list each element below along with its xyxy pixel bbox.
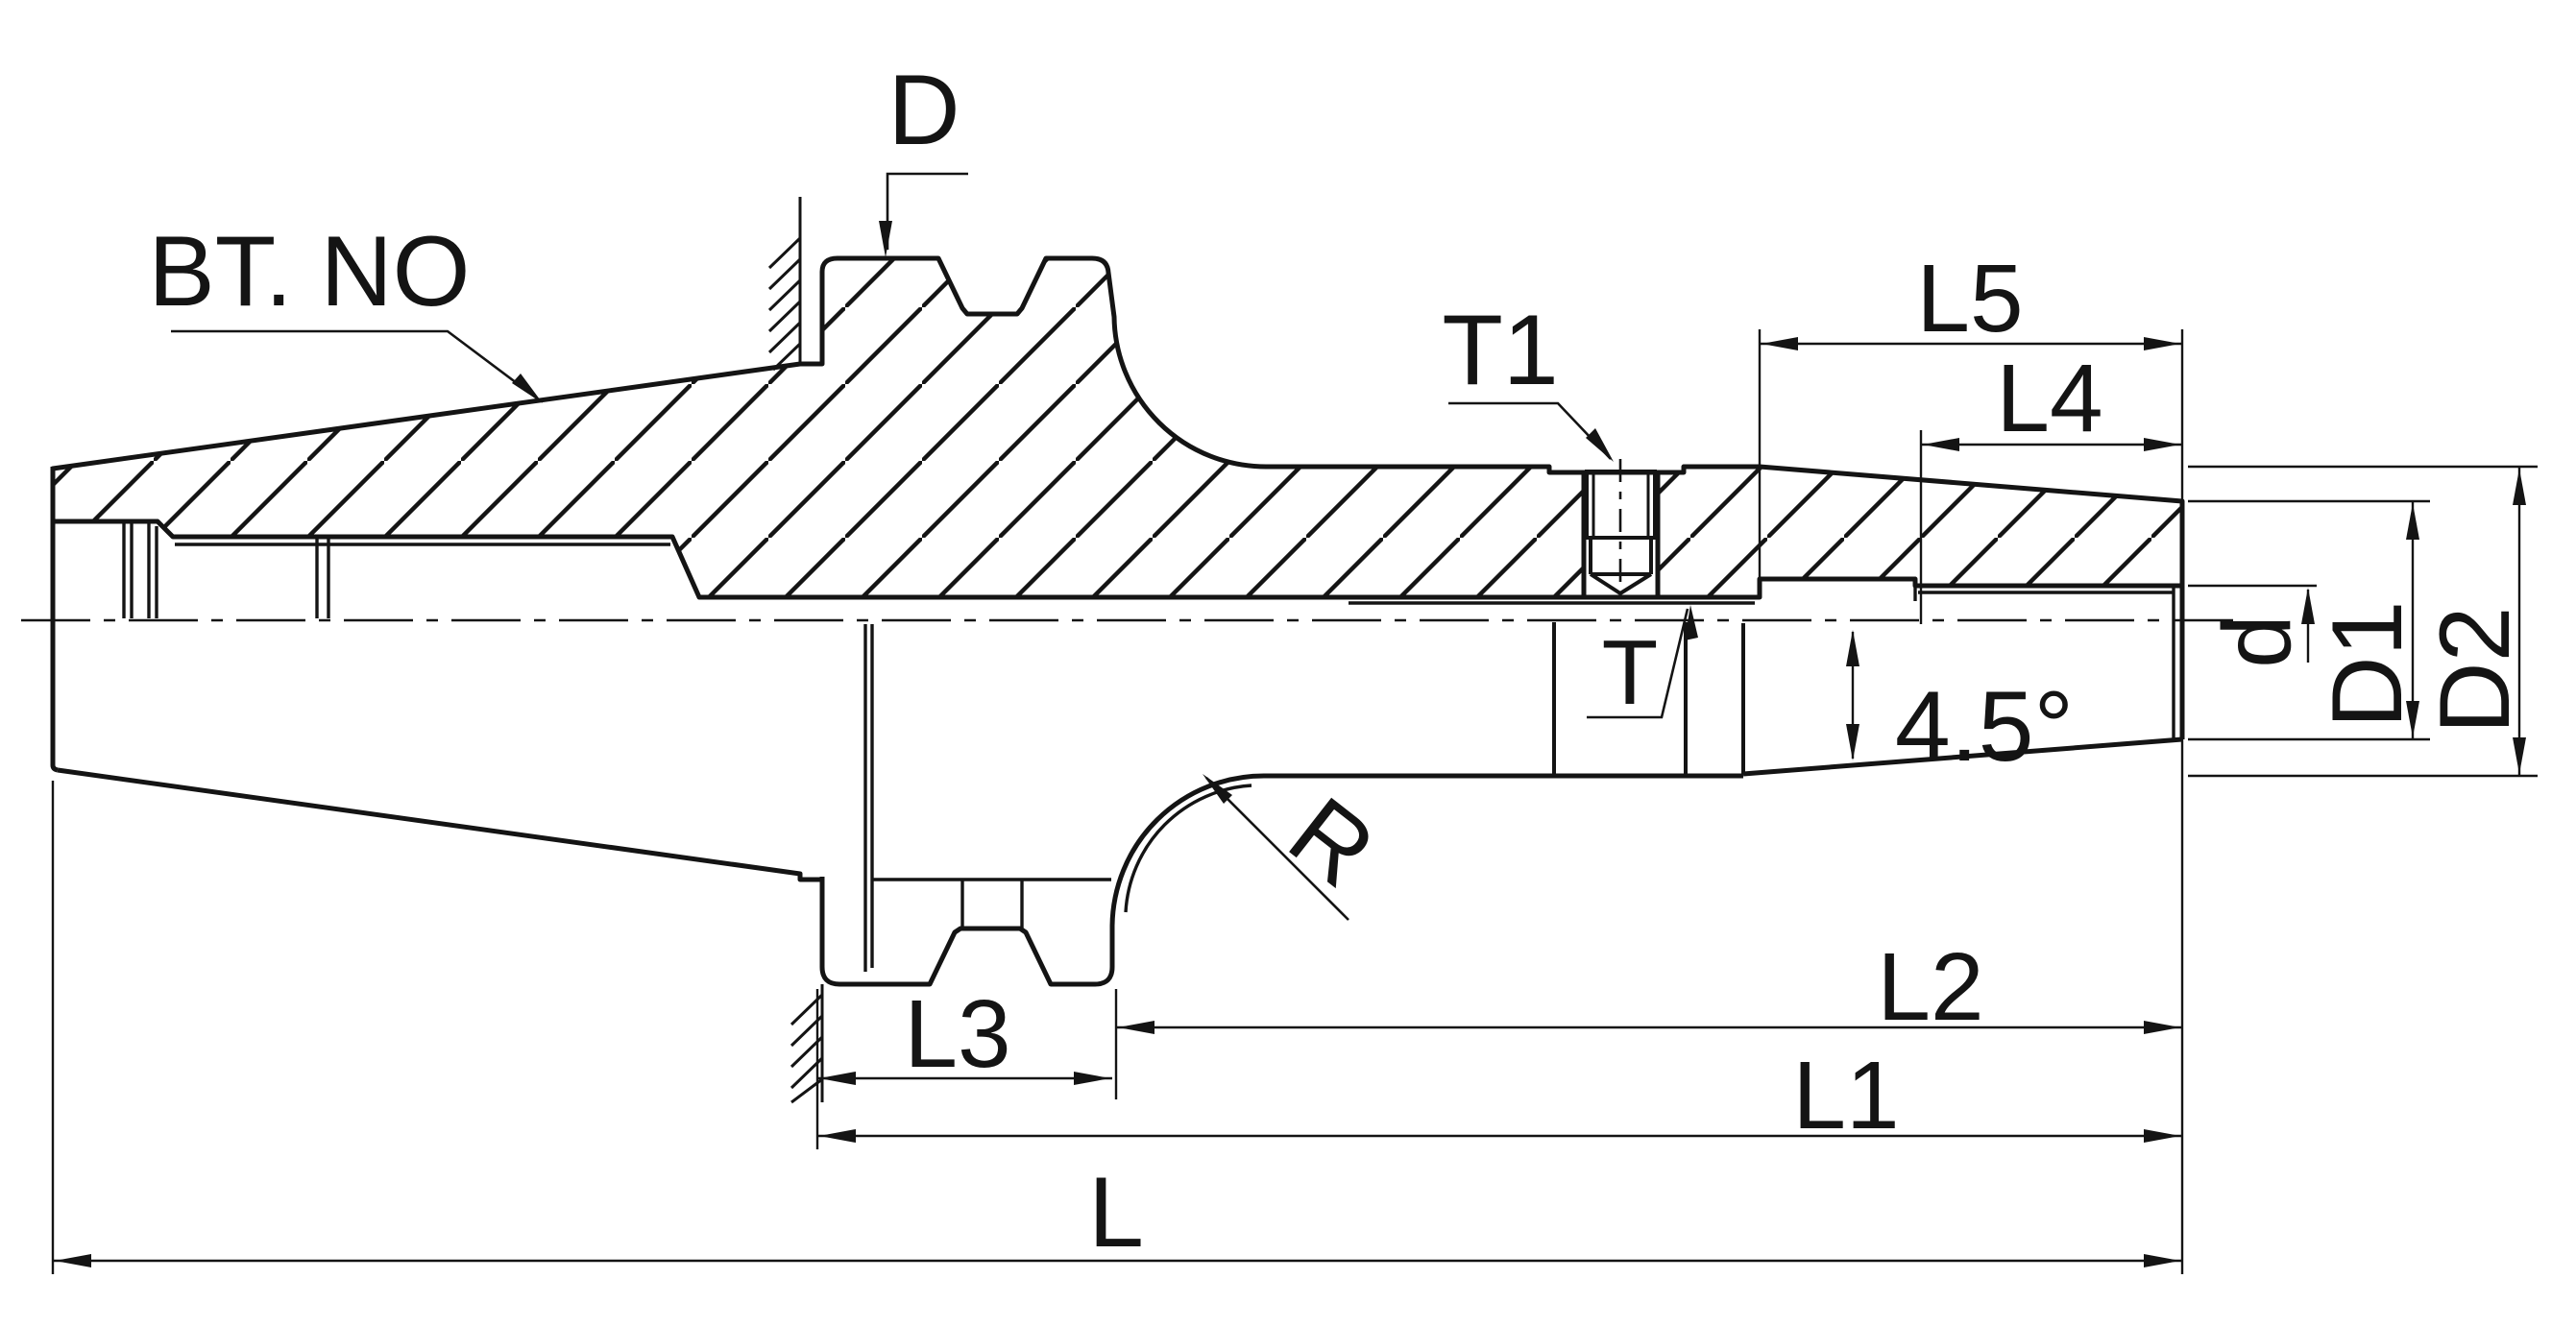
label-l3: L3 [904, 980, 1010, 1088]
label-l5: L5 [1916, 245, 2023, 352]
label-t1: T1 [1442, 295, 1558, 406]
label-d1: D1 [2312, 601, 2423, 729]
technical-drawing-page: BT. NO D T1 L5 L4 d D1 D2 T 4.5° R L3 L2… [0, 0, 2576, 1327]
label-bt-no: BT. NO [148, 216, 470, 327]
tool-holder-drawing: BT. NO D T1 L5 L4 d D1 D2 T 4.5° R L3 L2… [0, 0, 2576, 1327]
shank-taper-bottom [58, 770, 822, 880]
leader-bt-no [171, 331, 540, 400]
label-r: R [1269, 777, 1395, 909]
label-l2: L2 [1877, 933, 1983, 1041]
label-angle: 4.5° [1895, 671, 2074, 783]
label-bore-d: d [2203, 615, 2311, 668]
leader-t1 [1448, 403, 1611, 459]
leader-d-upper [887, 174, 968, 250]
label-l: L [1088, 1157, 1144, 1268]
label-l1: L1 [1792, 1042, 1899, 1149]
set-screw [1587, 459, 1655, 607]
arrowheads [55, 221, 2526, 1267]
flange-groove-detail [865, 624, 1252, 972]
label-t: T [1602, 621, 1659, 724]
label-flange-diameter-d: D [887, 55, 960, 166]
label-l4: L4 [1996, 345, 2102, 452]
gauge-plane-datum-top [769, 197, 800, 370]
label-d2: D2 [2419, 607, 2531, 735]
